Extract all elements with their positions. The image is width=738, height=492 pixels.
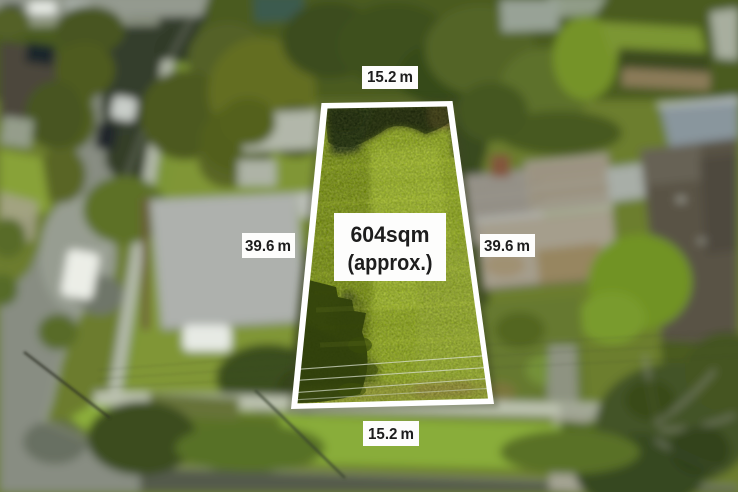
svg-text:39.6 m: 39.6 m — [245, 238, 291, 255]
svg-text:604sqm: 604sqm — [351, 222, 430, 247]
svg-text:(approx.): (approx.) — [348, 250, 433, 275]
svg-text:15.2 m: 15.2 m — [368, 426, 414, 443]
svg-text:15.2 m: 15.2 m — [367, 69, 413, 86]
svg-text:39.6 m: 39.6 m — [484, 238, 530, 255]
